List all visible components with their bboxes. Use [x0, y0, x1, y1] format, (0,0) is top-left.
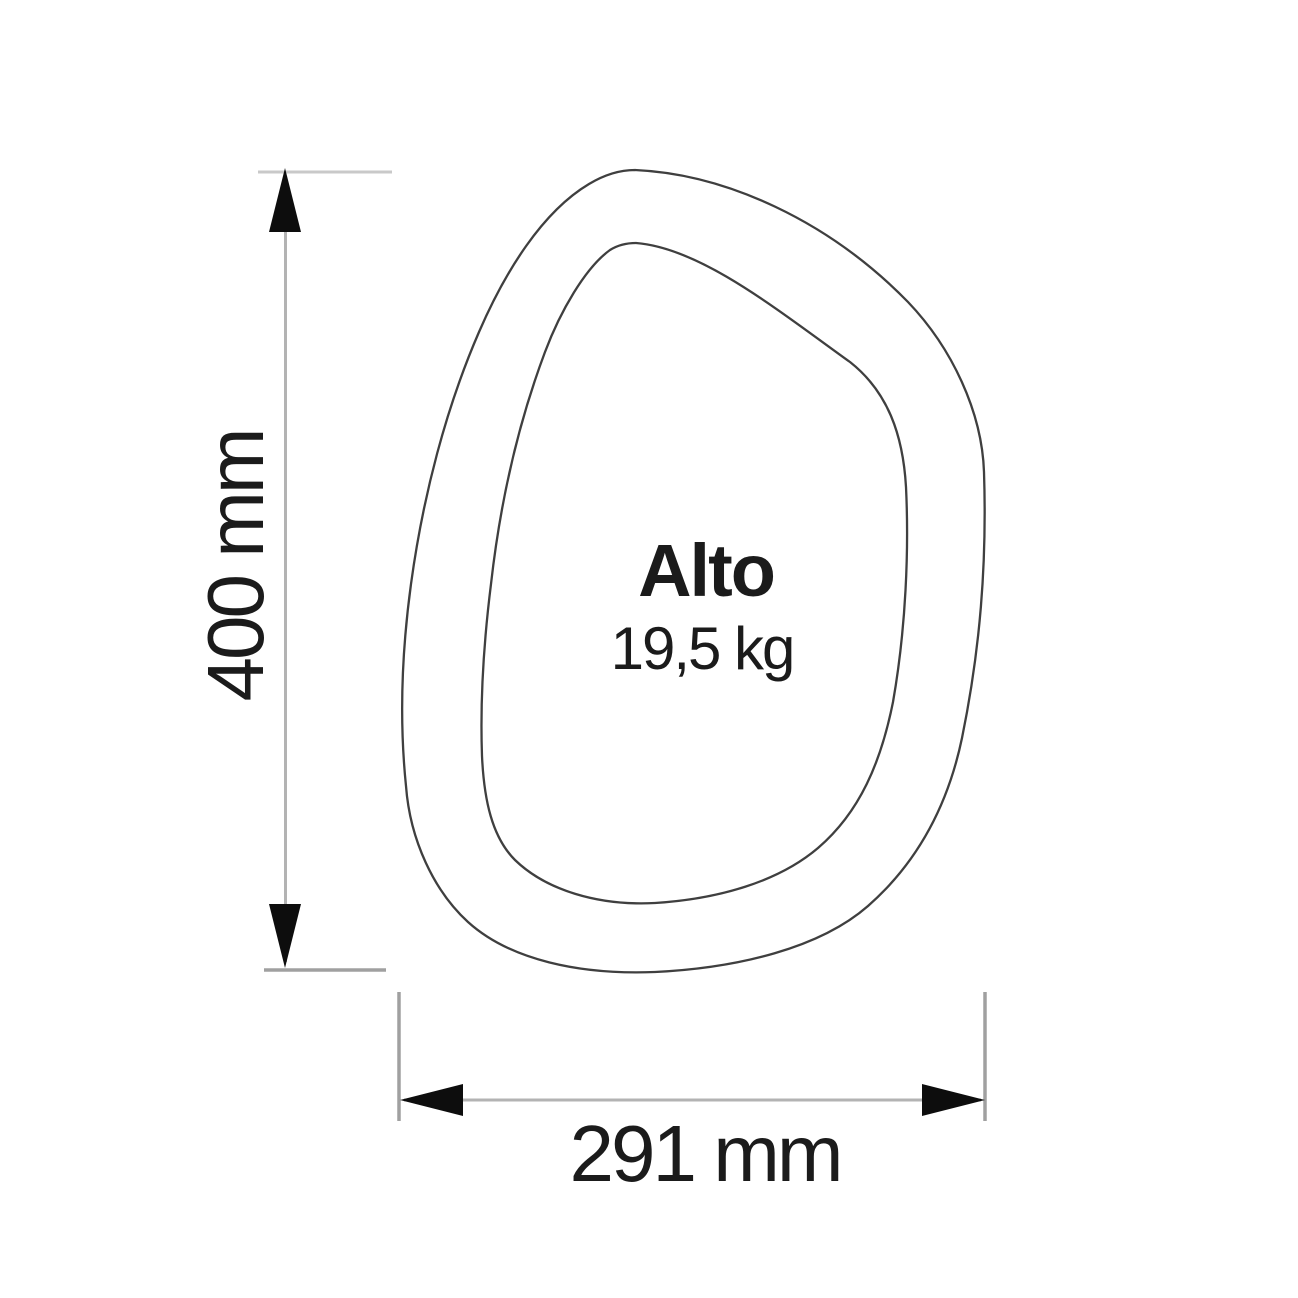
weight-label: 19,5 kg — [611, 619, 794, 679]
dimension-diagram: 400 mm Alto 19,5 kg 291 mm — [0, 0, 1298, 1298]
arrow-up-icon — [269, 168, 301, 232]
arrow-left-icon — [400, 1084, 463, 1116]
arrow-right-icon — [922, 1084, 985, 1116]
height-dimension-label: 400 mm — [196, 431, 276, 702]
arrow-down-icon — [269, 904, 301, 968]
product-name-label: Alto — [638, 534, 774, 608]
width-dimension-label: 291 mm — [570, 1114, 841, 1194]
